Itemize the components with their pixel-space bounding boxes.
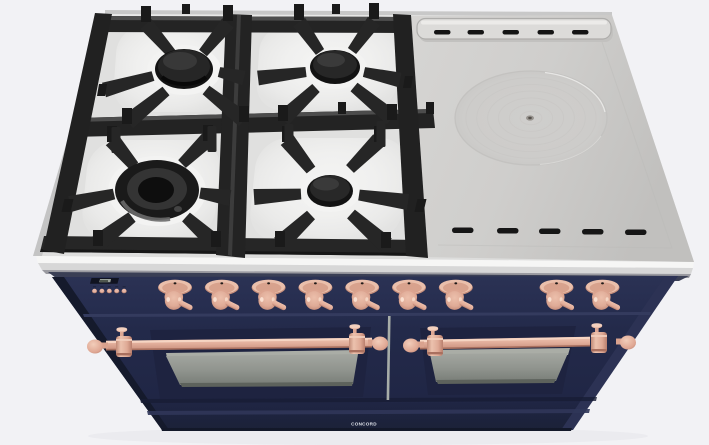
- svg-text:CONCORD: CONCORD: [351, 422, 377, 427]
